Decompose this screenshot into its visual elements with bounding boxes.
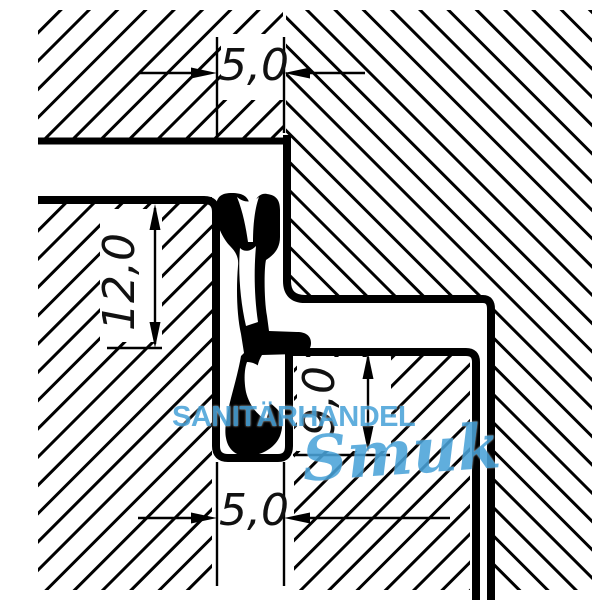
dimension-groove-width-bottom: 5,0 [219,489,289,533]
technical-drawing-canvas: 5,0 12,0 9,0 5,0 SANITÄRHANDEL Smuk [0,0,600,600]
dimension-depth-left: 12,0 [98,212,142,352]
watermark-shop-script: Smuk [300,409,503,496]
dimension-groove-width-top: 5,0 [219,44,289,88]
seal-cross-section-diagram [0,0,600,600]
